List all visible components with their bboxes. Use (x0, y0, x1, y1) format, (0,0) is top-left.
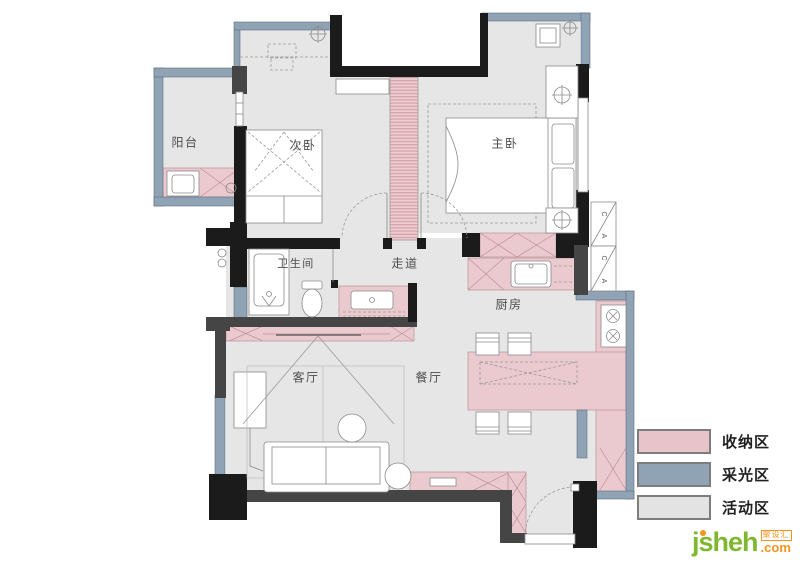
ac-platform: C A C A (591, 202, 616, 291)
legend-label-activity: 活动区 (722, 497, 770, 518)
site-logo: jsheh 聚设汇 .com (692, 530, 792, 554)
legend-item-activity: 活动区 (637, 494, 770, 520)
ac-label-c1: C (600, 211, 607, 216)
room-label-kitchen: 厨房 (495, 296, 522, 313)
ac-label-c2: C (600, 255, 607, 260)
legend-label-storage: 收纳区 (722, 431, 770, 452)
logo-domain-suffix: .com (761, 541, 791, 554)
legend-item-daylight: 采光区 (637, 461, 770, 487)
room-label-corridor: 走道 (391, 255, 418, 272)
room-label-balcony: 阳台 (171, 134, 198, 151)
room-label-dining-room: 餐厅 (415, 369, 442, 386)
logo-dot-icon (700, 530, 706, 536)
room-label-living-room: 客厅 (292, 369, 319, 386)
legend: 收纳区 采光区 活动区 (637, 428, 770, 527)
logo-right-block: 聚设汇 .com (761, 530, 792, 554)
room-label-bathroom: 卫生间 (277, 255, 315, 271)
legend-item-storage: 收纳区 (637, 428, 770, 454)
room-label-master-bedroom: 主卧 (491, 135, 518, 152)
legend-swatch-activity (637, 495, 711, 520)
legend-swatch-daylight (637, 462, 711, 487)
floorplan-page: C A C A 阳台 次卧 主卧 卫生间 走道 厨房 客厅 餐厅 收纳区 采光区… (0, 0, 800, 565)
ac-label-a1: A (600, 234, 607, 239)
legend-label-daylight: 采光区 (722, 464, 770, 485)
legend-swatch-storage (637, 429, 711, 454)
room-label-bedroom-2: 次卧 (289, 137, 316, 154)
ac-label-a2: A (600, 279, 607, 284)
